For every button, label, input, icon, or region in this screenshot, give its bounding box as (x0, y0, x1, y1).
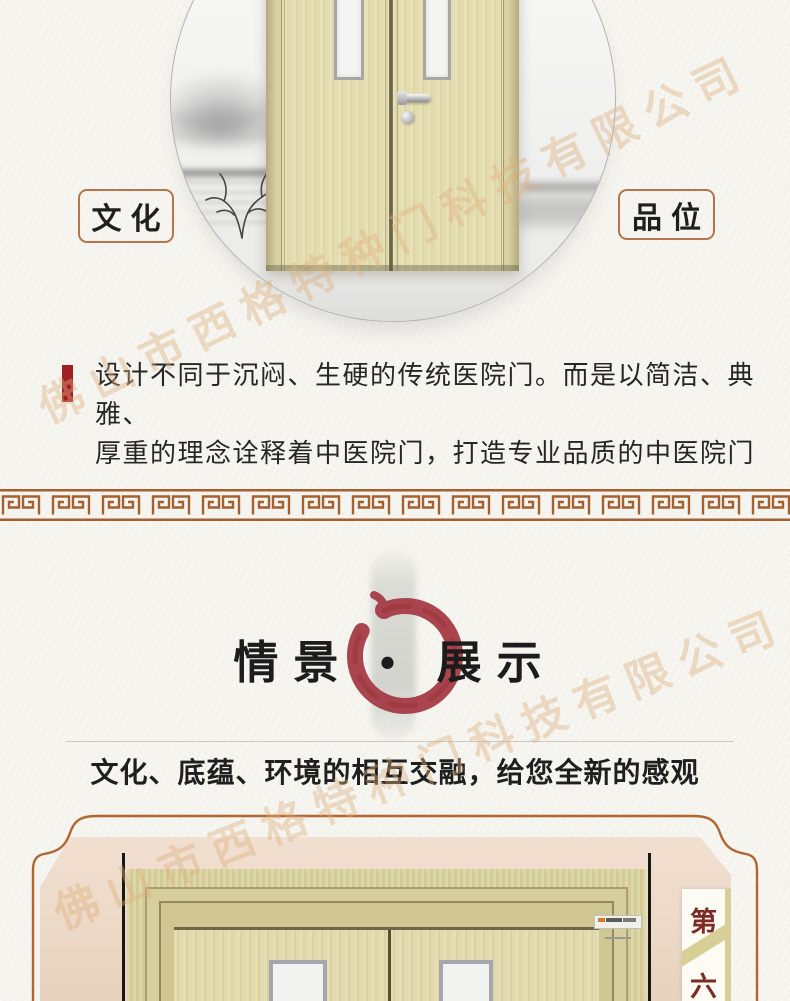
door-bottom-shadow (266, 265, 519, 271)
door-edge-line (397, 0, 398, 271)
ink-water-art (170, 169, 281, 177)
taste-label: 品位 (618, 189, 715, 240)
ink-tree-icon (204, 153, 274, 239)
divider-line (66, 741, 734, 742)
taste-label-text: 品位 (623, 193, 710, 237)
door-window-right (423, 0, 451, 80)
floor-area (171, 271, 615, 321)
culture-label-text: 文化 (83, 194, 170, 238)
intro-paragraph: 设计不同于沉闷、生硬的传统医院门。而是以简洁、典雅、 厚重的理念诠释着中医院门，… (62, 356, 790, 473)
culture-label: 文化 (78, 189, 174, 243)
intro-line-2: 厚重的理念诠释着中医院门，打造专业品质的中医院门 (95, 434, 790, 473)
meander-border (0, 489, 790, 522)
scene-frame-border (20, 806, 770, 1001)
intro-text: 设计不同于沉闷、生硬的传统医院门。而是以简洁、典雅、 厚重的理念诠释着中医院门，… (95, 356, 790, 473)
ink-mountain-art (170, 69, 278, 129)
product-detail-page: 文化 品位 设计不同于沉闷、生硬的传统医院门。而是以简洁、典雅、 厚重的理念诠释… (0, 0, 790, 1001)
door-edge-line (284, 0, 285, 271)
ink-reflection-art (170, 181, 271, 231)
ink-horizon-art (516, 197, 616, 225)
door-edge-line (501, 0, 502, 271)
door-frame-right (503, 0, 519, 271)
ink-horizon-art (523, 183, 616, 192)
door-frame-left (266, 0, 282, 271)
section-title: 情景 • 展示 (0, 626, 790, 691)
red-accent-bar (62, 365, 73, 402)
door-center-gap (389, 0, 393, 271)
door-window-left (334, 0, 364, 80)
intro-line-1: 设计不同于沉闷、生硬的传统医院门。而是以简洁、典雅、 (95, 356, 790, 434)
door-lock (401, 111, 414, 124)
hero-door-photo (170, 0, 616, 322)
door-handle (399, 94, 430, 102)
door-edge-line (385, 0, 386, 271)
double-door-image (266, 0, 519, 271)
section-subtitle: 文化、底蕴、环境的相互交融，给您全新的感观 (0, 751, 790, 791)
